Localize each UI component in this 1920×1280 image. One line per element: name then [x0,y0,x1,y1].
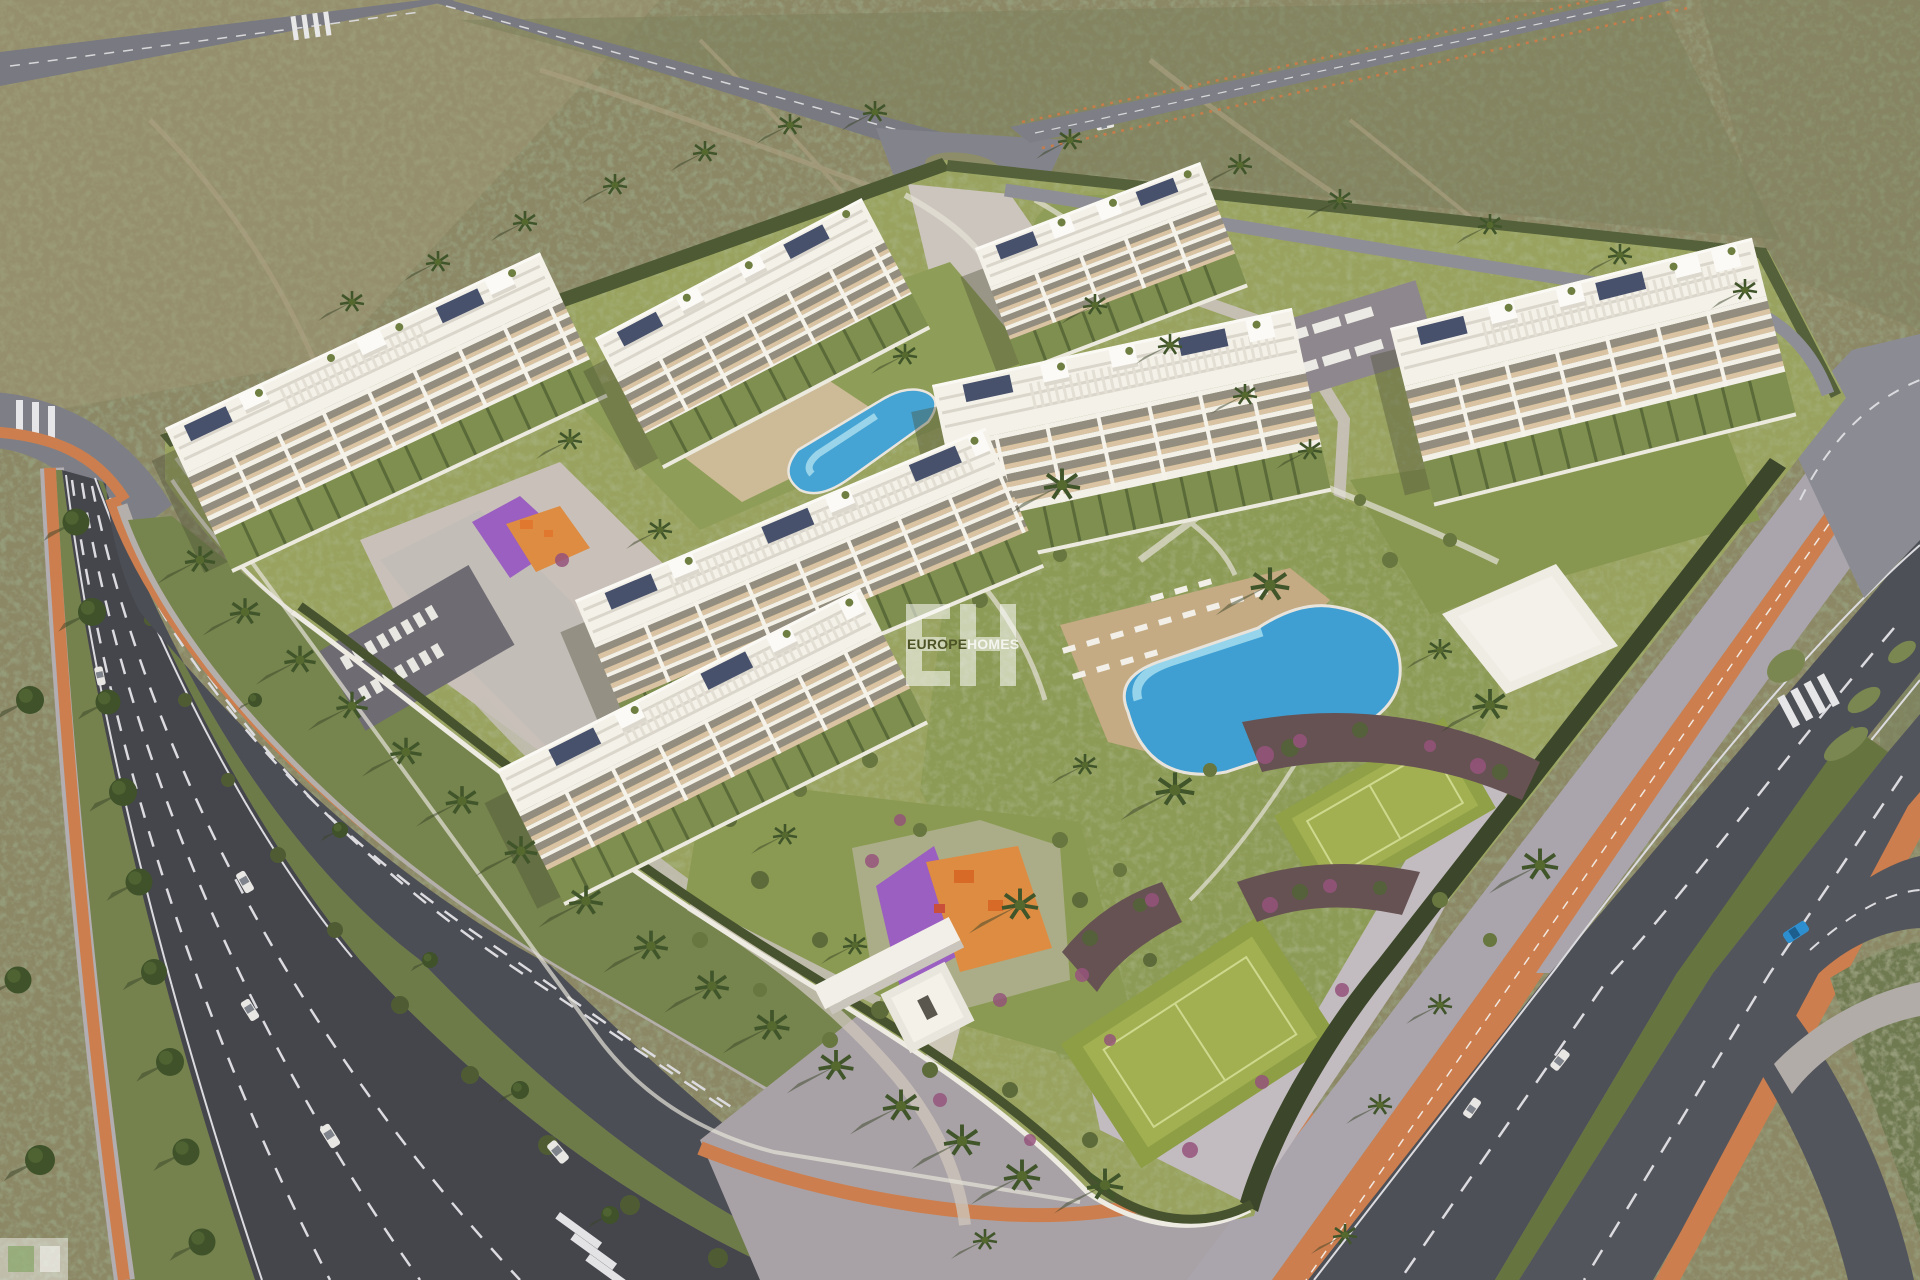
svg-text:EUROPE: EUROPE [907,636,967,652]
svg-text:HOMES: HOMES [967,636,1019,652]
